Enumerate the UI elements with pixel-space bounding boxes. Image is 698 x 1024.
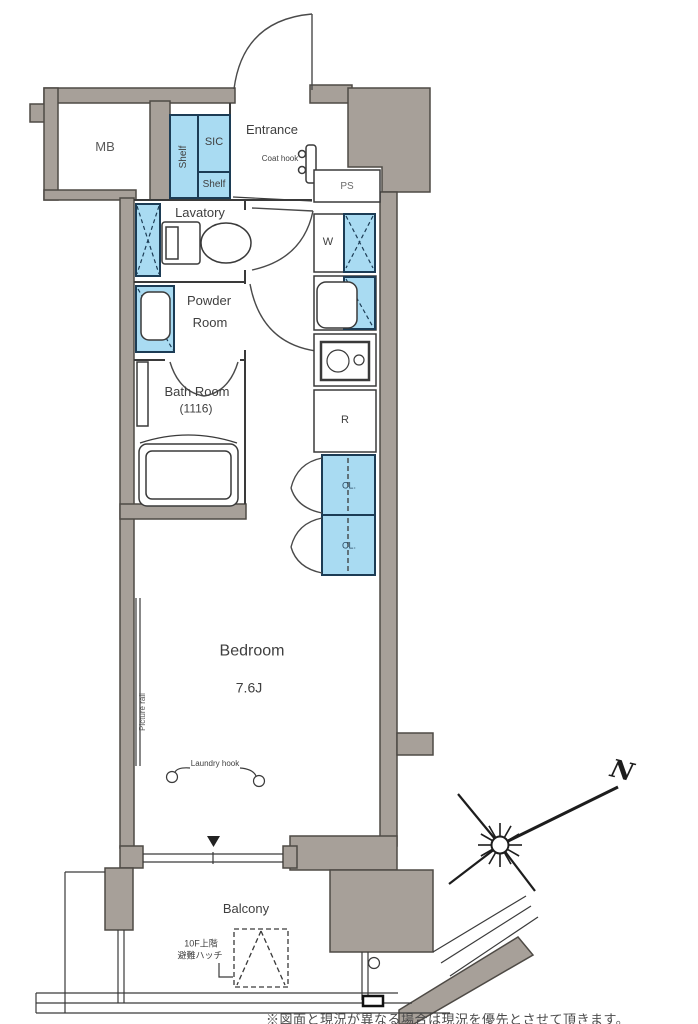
escape-hatch-label-2: 避難ハッチ xyxy=(177,951,222,960)
bath-room-label-1: Bath Room xyxy=(164,385,229,399)
closet-fixtures xyxy=(291,455,375,575)
toilet-tank-detail xyxy=(166,227,178,259)
lavatory-door-leaf xyxy=(252,208,313,211)
bedroom-size-label: 7.6J xyxy=(236,681,262,696)
bath-counter xyxy=(137,362,148,426)
escape-hatch-label-1: 10F上階 xyxy=(184,939,218,948)
picture-rail-label: Picture rail xyxy=(139,693,147,731)
entrance-label: Entrance xyxy=(246,123,298,137)
walls xyxy=(30,85,533,1024)
railing-drain-box xyxy=(363,996,383,1006)
bath-room-label-2: (1116) xyxy=(180,403,213,416)
entrance-fixtures xyxy=(170,14,316,198)
closet-upper-label: CL. xyxy=(342,481,356,490)
laundry-hook-leader xyxy=(175,768,190,772)
bedroom-label: Bedroom xyxy=(220,644,285,661)
hatch-label-leader xyxy=(219,963,233,977)
laundry-hook-ring xyxy=(167,772,178,783)
powder-door-swing xyxy=(250,284,316,351)
closet-fold-door xyxy=(291,518,322,547)
window-marker-triangle xyxy=(207,836,220,847)
balcony-drain xyxy=(369,958,380,969)
lavatory-door-swing xyxy=(252,211,313,270)
bottom-note: ※図面と現況が異なる場合は現況を優先とさせて頂きます。 xyxy=(266,1013,696,1024)
closet-lower-label: CL. xyxy=(342,541,356,550)
kitchen-sink xyxy=(317,282,357,328)
mb-label: MB xyxy=(95,140,115,154)
closet-fold-door xyxy=(291,488,322,513)
washer-label: W xyxy=(323,237,333,249)
vanity-sink xyxy=(141,292,170,340)
bathtub-inner xyxy=(146,451,231,499)
lavatory-label: Lavatory xyxy=(175,206,225,220)
stove-top xyxy=(321,342,369,380)
powder-room-label-2: Room xyxy=(193,316,228,330)
floor-plan: MB Shelf SIC Shelf Entrance Coat hook PS… xyxy=(0,0,698,1024)
closet-fold-door xyxy=(291,458,322,488)
sic-shelf-side-label: Shelf xyxy=(179,146,190,169)
compass-rose xyxy=(449,787,618,891)
entrance-door-swing xyxy=(234,14,312,89)
escape-hatch xyxy=(234,929,288,987)
fridge-label: R xyxy=(341,415,349,427)
coat-hook-peg xyxy=(299,167,306,174)
sic-shelf-bottom-label: Shelf xyxy=(203,180,226,191)
ps-label: PS xyxy=(340,182,353,193)
closet-fold-door xyxy=(291,547,322,573)
bedroom-details xyxy=(136,598,283,864)
laundry-hook-label: Laundry hook xyxy=(191,760,239,768)
toilet-bowl xyxy=(201,223,251,263)
laundry-hook-ring xyxy=(254,776,265,787)
kitchen-fixtures xyxy=(314,170,380,452)
balcony-label: Balcony xyxy=(223,902,269,916)
tub-apron-line xyxy=(140,435,237,443)
sic-label: SIC xyxy=(205,137,223,149)
laundry-hook-leader xyxy=(240,768,256,776)
coat-hook-peg xyxy=(299,151,306,158)
coat-hook-label: Coat hook xyxy=(262,155,298,163)
powder-room-label-1: Powder xyxy=(187,294,231,308)
